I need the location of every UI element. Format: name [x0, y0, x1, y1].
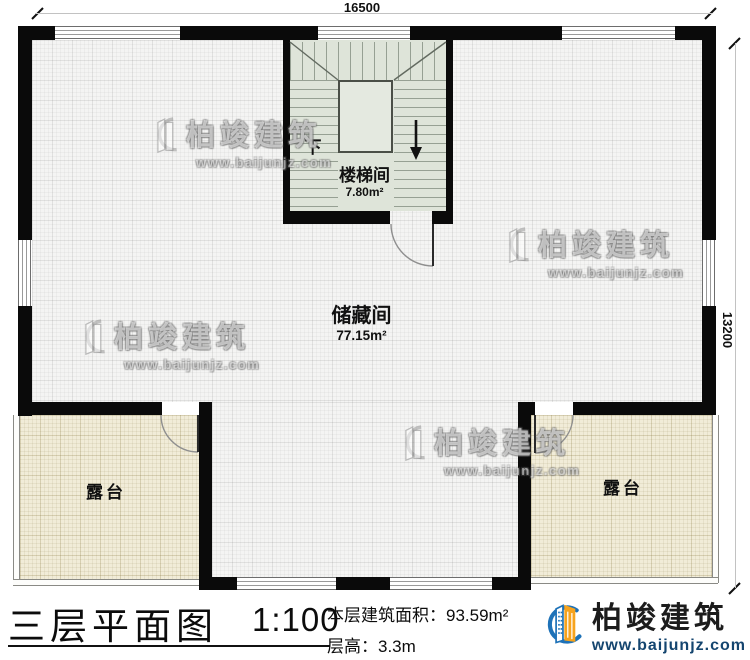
- terrace-left-label: 露台: [56, 484, 156, 503]
- floor-area-text: 本层建筑面积：93.59m²: [327, 601, 508, 626]
- stair-down-label: 下: [296, 139, 330, 158]
- title-underline: [8, 645, 330, 647]
- door-arc-stairwell: [391, 224, 433, 266]
- floor-height-text: 层高：3.3m: [327, 632, 416, 657]
- stairwell-label: 楼梯间: [283, 167, 446, 186]
- stair-down-arrow: [410, 120, 422, 160]
- stairwell-area-label: 7.80m²: [283, 186, 446, 199]
- floor-plan-canvas: 16500 13200 楼梯间 7.80m² 下 储藏间 77.15m² 露台 …: [0, 0, 750, 660]
- stair-diagonal-lines: [290, 42, 446, 80]
- storage-label: 储藏间: [280, 305, 443, 327]
- brand-url: www.baijunjz.com: [592, 637, 746, 655]
- dimension-width-label: 16500: [322, 0, 402, 15]
- door-arc-terrace-left: [161, 415, 198, 452]
- brand-name: 柏竣建筑: [592, 593, 746, 637]
- storage-area-label: 77.15m²: [280, 329, 443, 344]
- dimension-tick-marks: [32, 8, 740, 594]
- page-title: 三层平面图: [8, 596, 218, 650]
- dimension-height-label: 13200: [719, 295, 735, 365]
- brand-logo-icon: [541, 592, 585, 656]
- dimension-line-right: [735, 43, 736, 588]
- brand-logo: 柏竣建筑 www.baijunjz.com: [541, 591, 746, 657]
- door-arc-terrace-right: [535, 415, 573, 453]
- terrace-right-label: 露台: [573, 480, 673, 499]
